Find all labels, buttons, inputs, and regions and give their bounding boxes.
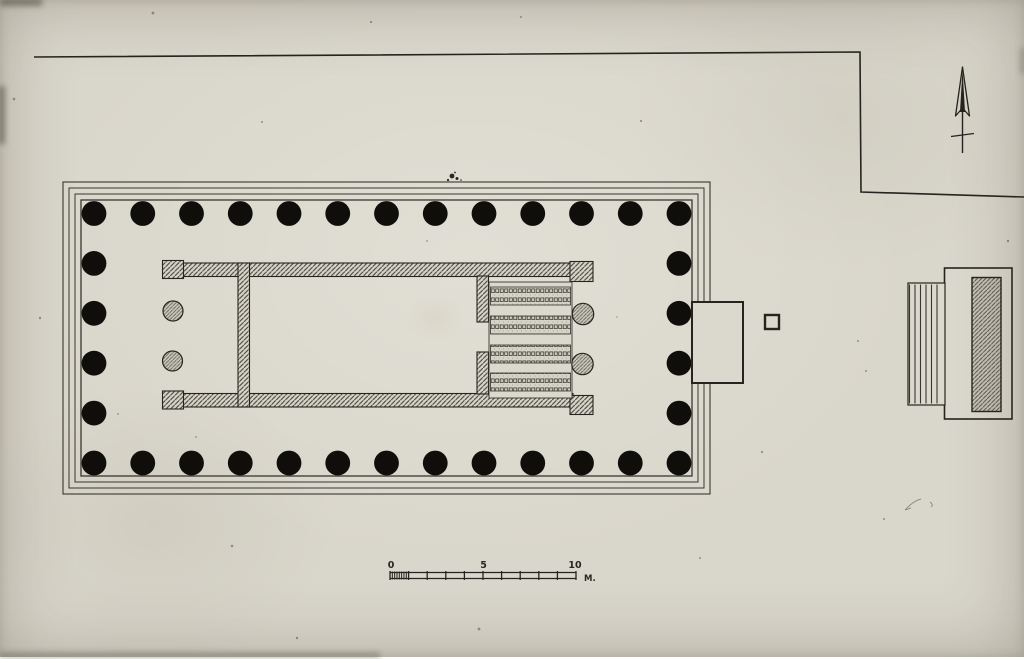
northeast-anta — [570, 262, 593, 282]
peristyle-column — [472, 201, 497, 226]
north-arrow-icon — [951, 67, 974, 153]
stylobate-steps — [63, 182, 710, 494]
east-cross-wall-upper — [477, 276, 489, 322]
north-wall — [163, 263, 573, 277]
peristyle-column — [277, 451, 302, 476]
scale-label-10: 10 — [568, 560, 582, 571]
peristyle-column — [667, 351, 692, 376]
peristyle-column — [667, 301, 692, 326]
pen-squiggle — [905, 499, 932, 510]
scale-label-0: 0 — [388, 560, 395, 571]
pronaos-grid-block — [489, 282, 572, 398]
grid-band — [491, 373, 571, 391]
peristyle-column — [325, 451, 350, 476]
temple-plan — [63, 182, 743, 494]
altar-plan — [908, 268, 1012, 419]
grid-band — [491, 287, 571, 305]
peristyle-column — [618, 451, 643, 476]
peristyle-column — [423, 451, 448, 476]
plan-drawing: 0 5 10 M. — [0, 0, 1024, 657]
peristyle-column — [569, 451, 594, 476]
west-porch-column — [163, 351, 183, 371]
grid-band — [491, 345, 571, 363]
peristyle-column — [325, 201, 350, 226]
peristyle-column — [472, 451, 497, 476]
peristyle-column — [374, 201, 399, 226]
scale-label-5: 5 — [480, 560, 487, 571]
peristyle-column — [667, 201, 692, 226]
west-cross-wall — [238, 263, 250, 407]
east-porch-column — [572, 303, 593, 324]
east-cross-wall-lower — [477, 352, 489, 394]
peristyle-column — [667, 251, 692, 276]
peristyle-column — [82, 451, 107, 476]
peristyle-column — [618, 201, 643, 226]
peristyle-column — [82, 351, 107, 376]
peristyle-column — [82, 201, 107, 226]
peristyle-column — [667, 401, 692, 426]
peristyle-column — [520, 201, 545, 226]
peristyle-column — [667, 451, 692, 476]
peristyle-column — [374, 451, 399, 476]
paper-sheet: 0 5 10 M. — [0, 0, 1024, 657]
scale-bar: 0 5 10 M. — [388, 560, 596, 584]
peristyle-column — [228, 451, 253, 476]
southeast-anta — [570, 396, 593, 415]
peribolos-boundary-line — [34, 52, 1024, 197]
east-porch-column — [572, 353, 593, 374]
peristyle-column — [520, 451, 545, 476]
peristyle-column — [179, 201, 204, 226]
peristyle-column — [423, 201, 448, 226]
altar-core — [972, 278, 1001, 412]
peristyle-column — [82, 301, 107, 326]
scale-unit-label: M. — [584, 574, 596, 584]
peristyle-column — [569, 201, 594, 226]
northwest-anta — [163, 261, 184, 279]
peristyle-column — [277, 201, 302, 226]
peristyle-column — [130, 451, 155, 476]
west-porch-column — [163, 301, 183, 321]
east-ramp — [692, 302, 743, 383]
ink-blot — [447, 172, 462, 181]
grid-band — [491, 316, 571, 334]
peristyle-column — [179, 451, 204, 476]
peristyle-column — [130, 201, 155, 226]
peristyle-column — [228, 201, 253, 226]
peristyle-column — [82, 251, 107, 276]
peristyle-column — [82, 401, 107, 426]
detached-square-base — [765, 315, 779, 329]
southwest-anta — [163, 391, 184, 409]
peristyle-columns — [82, 201, 692, 475]
